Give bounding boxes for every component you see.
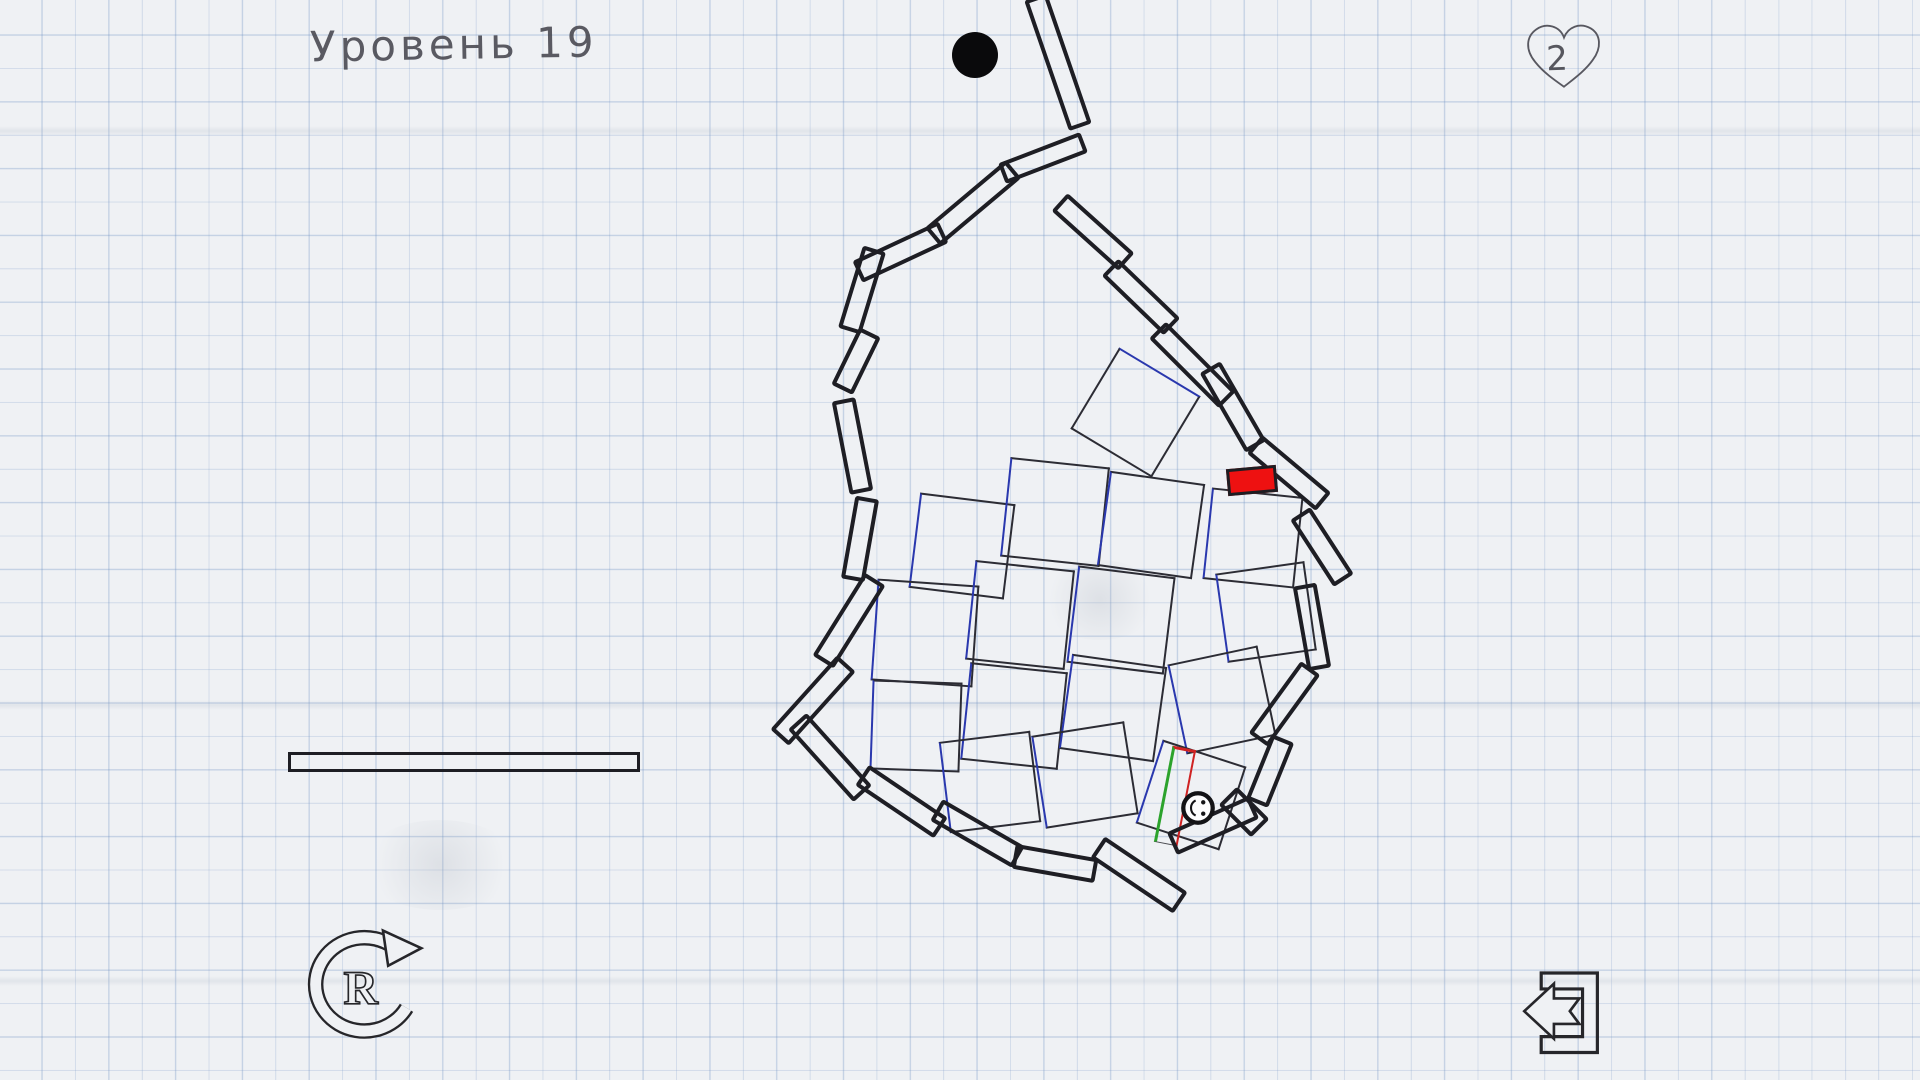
plank xyxy=(1024,0,1092,131)
smiley-ball xyxy=(1179,789,1217,827)
tile[interactable] xyxy=(1097,471,1205,579)
lives-count: 2 xyxy=(1546,38,1569,79)
level-structure xyxy=(0,0,1920,1080)
plank xyxy=(1246,734,1294,808)
game-canvas: Уровень 19 2 R xyxy=(0,0,1920,1080)
plank xyxy=(1011,843,1098,882)
plank xyxy=(1052,193,1135,271)
platform-bar xyxy=(288,752,640,772)
ball xyxy=(952,32,998,78)
plank xyxy=(831,327,881,395)
exit-door-icon xyxy=(1520,955,1626,1061)
tile[interactable] xyxy=(1031,721,1139,829)
restart-letter: R xyxy=(344,962,379,1015)
lives-indicator: 2 xyxy=(1522,18,1606,96)
level-title: Уровень 19 xyxy=(310,17,598,71)
restart-icon: R xyxy=(300,928,440,1043)
plank xyxy=(855,764,948,838)
tile[interactable] xyxy=(1000,457,1110,567)
plank xyxy=(1102,258,1181,335)
plank xyxy=(838,245,886,334)
restart-button[interactable]: R xyxy=(300,928,440,1043)
exit-button[interactable] xyxy=(1520,955,1626,1061)
tile[interactable] xyxy=(871,579,980,688)
plank xyxy=(841,496,879,583)
red-block xyxy=(1226,464,1278,495)
tile[interactable] xyxy=(965,560,1075,670)
plank xyxy=(831,397,873,495)
